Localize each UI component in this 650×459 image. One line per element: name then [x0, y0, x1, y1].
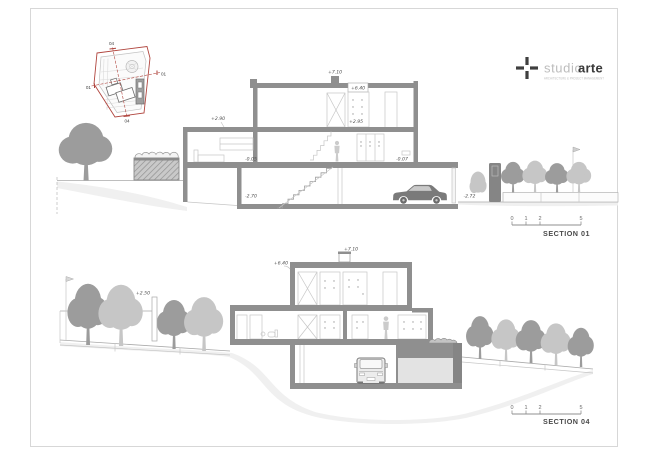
house-section-01	[183, 76, 458, 209]
tree-icon	[184, 297, 223, 351]
logo-studio-text: studio	[544, 61, 582, 76]
scale-bar-01: 0 1 2 5	[510, 216, 582, 225]
person-icon	[383, 316, 389, 339]
section-04-title: SECTION 04	[543, 417, 590, 426]
level-label-upper-slab: +2.90	[211, 116, 225, 122]
scale-mark: 1	[524, 216, 527, 222]
tree-icon	[566, 162, 591, 193]
annex-space	[398, 358, 453, 383]
planter-icon	[134, 152, 179, 180]
tree-icon	[501, 162, 524, 193]
tree-icon	[541, 323, 571, 365]
section-04-drawing: +7.10 +6.40 +2.50 0 1 2 5 SECTION 04	[60, 247, 594, 427]
level-label-roof: +6.40	[351, 86, 365, 92]
stair-upper	[310, 132, 331, 161]
site-plan-label-04-top: 04	[109, 41, 115, 46]
terrain-left	[57, 182, 187, 212]
site-plan-label-04-bottom: 04	[124, 119, 130, 124]
tree-icon	[568, 328, 594, 367]
level-label-driveway: -2.72	[464, 194, 476, 200]
tree-icon	[545, 163, 568, 192]
tree-icon	[466, 316, 493, 359]
level-label-entrance: -0.07	[396, 157, 408, 163]
site-plan-label-01-right: 01	[161, 72, 167, 77]
level-label-chimney-top: +7.10	[328, 70, 342, 76]
tree-icon	[59, 123, 113, 181]
level-label-upper-floor: +2.95	[349, 119, 363, 125]
low-wall	[503, 193, 618, 203]
scale-mark: 0	[510, 405, 513, 411]
scale-mark: 5	[579, 405, 582, 411]
studio-arte-logo: studio arte ARCHITECTURE & PROJECT MANAG…	[516, 57, 604, 81]
scale-mark: 2	[538, 216, 541, 222]
site-plan-label-01-left: 01	[86, 85, 92, 90]
logo-subtitle: ARCHITECTURE & PROJECT MANAGEMENT	[544, 77, 604, 81]
level-label-roof: +6.40	[274, 261, 288, 267]
level-label-garage: -2.70	[245, 194, 257, 200]
terrain-right	[458, 203, 618, 207]
scale-mark: 0	[510, 216, 513, 222]
site-plan-key: 04 04 01 01	[86, 41, 167, 124]
roof-planting	[429, 338, 457, 343]
car-side-icon	[393, 185, 447, 204]
chimney	[339, 253, 350, 262]
scale-mark: 1	[524, 405, 527, 411]
house-section-04	[230, 252, 462, 390]
scale-bar-04: 0 1 2 5	[510, 405, 582, 414]
scale-mark: 5	[579, 216, 582, 222]
car-front-icon	[355, 358, 388, 384]
level-label-street: +2.50	[136, 291, 150, 297]
entrance-pillar	[489, 163, 501, 202]
logo-arte-text: arte	[578, 61, 603, 76]
bush-icon	[470, 172, 487, 194]
fixing-dots	[352, 99, 362, 114]
logo-cross-icon	[516, 57, 538, 79]
scale-mark: 2	[538, 405, 541, 411]
architectural-drawing: 04 04 01 01 studio arte ARCHITECTURE & P…	[0, 0, 650, 459]
chimney	[331, 76, 339, 83]
level-label-ground-floor: -0.05	[245, 157, 257, 163]
garage-door	[452, 168, 456, 203]
level-label-chimney-top: +7.10	[344, 247, 358, 253]
drawing-sheet: 04 04 01 01 studio arte ARCHITECTURE & P…	[0, 0, 650, 459]
person-icon	[334, 141, 339, 162]
site-pole	[152, 297, 157, 341]
section-01-title: SECTION 01	[543, 229, 590, 238]
tree-icon	[522, 161, 547, 193]
